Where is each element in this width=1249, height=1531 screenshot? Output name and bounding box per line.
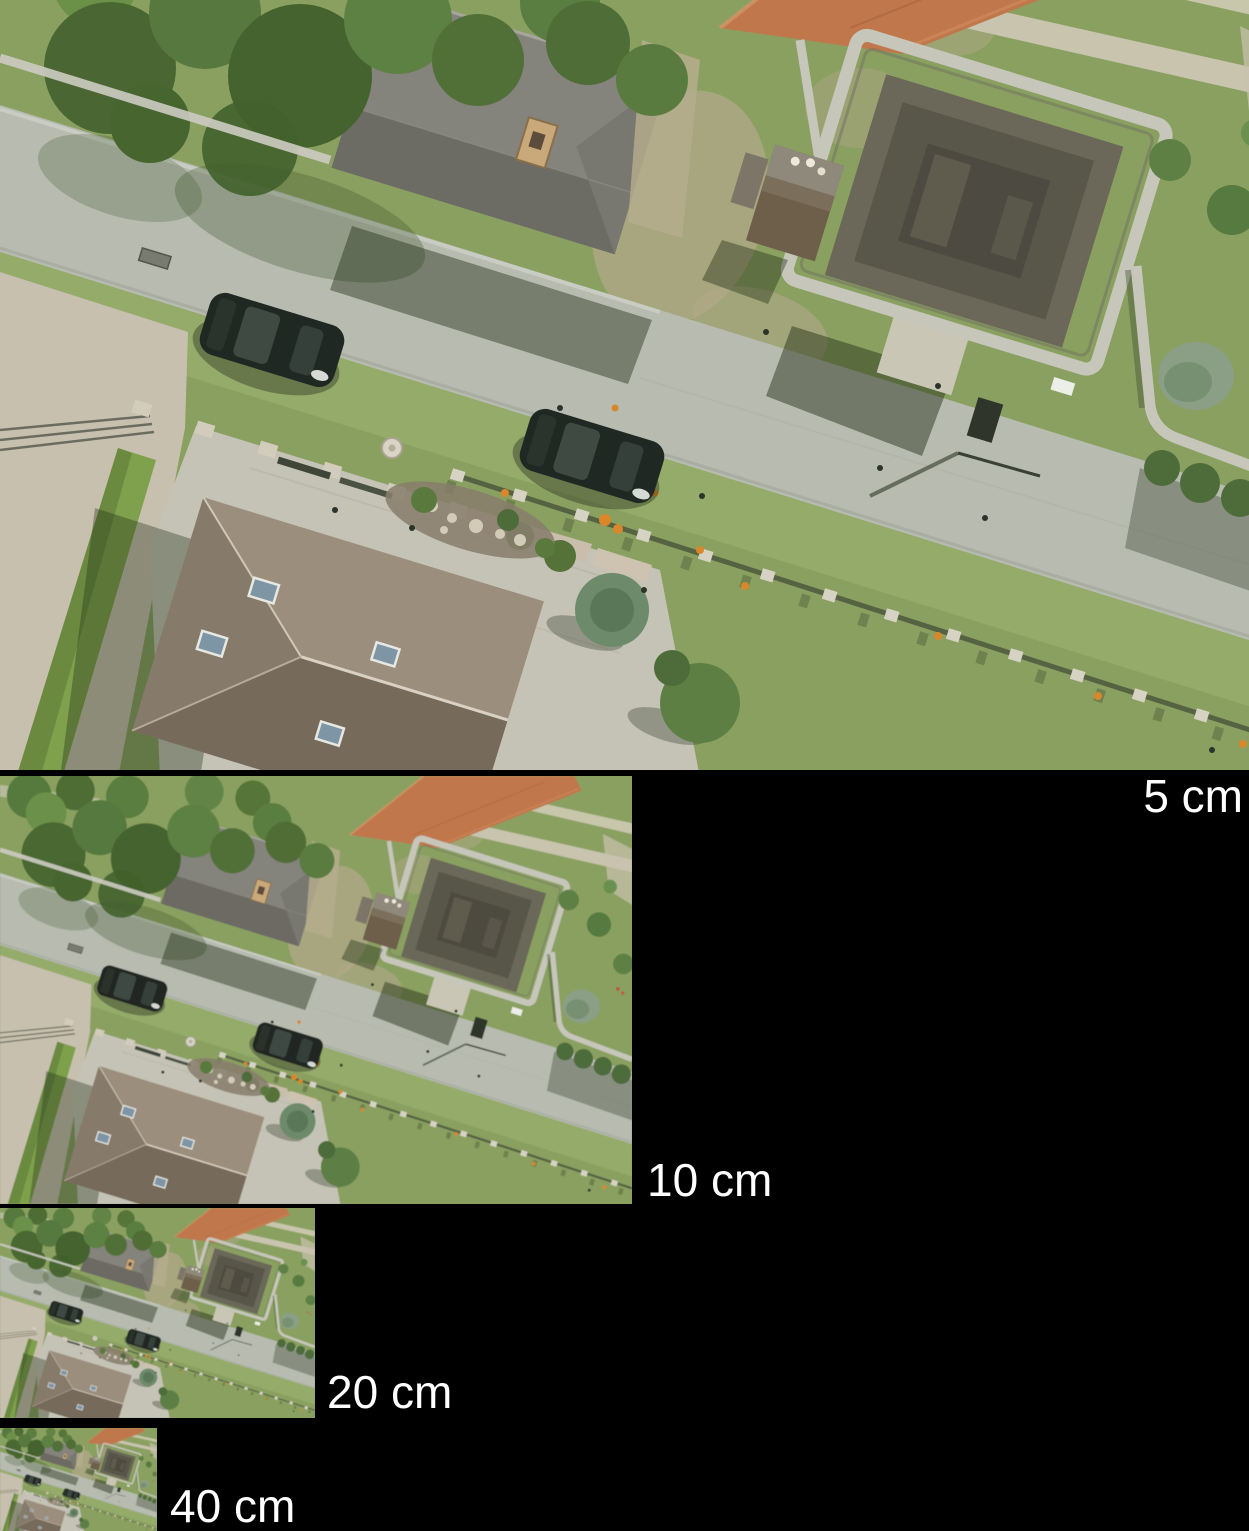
resolution-label-5cm: 5 cm	[1143, 772, 1243, 820]
aerial-image-40cm	[0, 1428, 157, 1531]
aerial-image-20cm	[0, 1208, 315, 1418]
resolution-label-20cm: 20 cm	[327, 1368, 452, 1416]
resolution-label-40cm: 40 cm	[170, 1482, 295, 1530]
figure-canvas: 5 cm 10 cm 20 cm 40 cm	[0, 0, 1249, 1531]
resolution-label-10cm: 10 cm	[647, 1156, 772, 1204]
aerial-image-10cm	[0, 776, 632, 1204]
aerial-image-5cm	[0, 0, 1249, 770]
